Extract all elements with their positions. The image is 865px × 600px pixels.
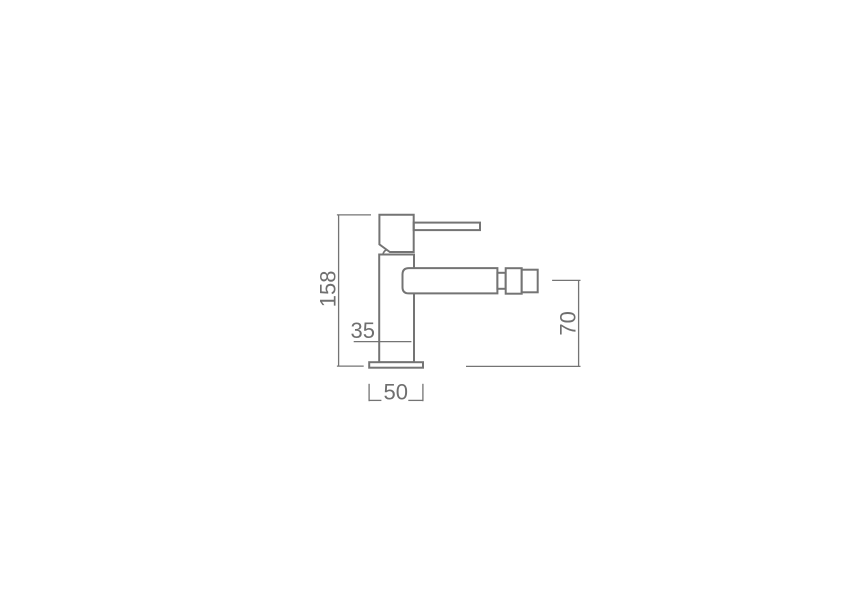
- svg-text:70: 70: [555, 311, 580, 335]
- svg-text:158: 158: [316, 271, 341, 308]
- svg-text:35: 35: [350, 318, 374, 343]
- svg-text:50: 50: [383, 380, 407, 405]
